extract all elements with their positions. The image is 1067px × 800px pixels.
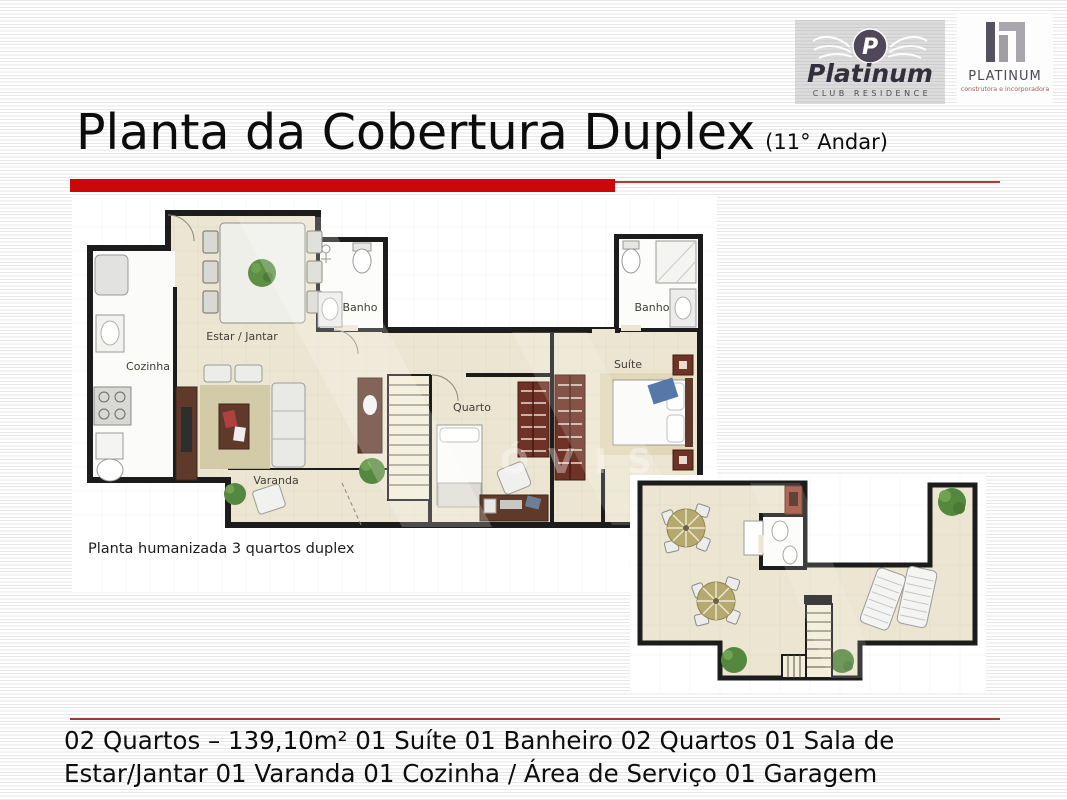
logo-platinum-construtora: PLATINUM construtora e incorporadora: [957, 14, 1053, 104]
label-quarto: Quarto: [453, 401, 491, 414]
page-title: Planta da Cobertura Duplex: [76, 104, 755, 161]
parasol-table-2: [691, 576, 741, 626]
logo-club-tagline: CLUB RESIDENCE: [813, 89, 931, 98]
spec-text: 02 Quartos – 139,10m² 01 Suíte 01 Banhei…: [64, 724, 1024, 790]
label-suite: Suíte: [614, 358, 642, 371]
monogram-letter: P: [862, 35, 878, 60]
footer-divider: [70, 718, 1000, 720]
logo-club-brand: Platinum: [807, 59, 933, 88]
plan-caption: Planta humanizada 3 quartos duplex: [88, 541, 355, 557]
label-banho-suite: Banho: [635, 301, 670, 314]
parasol-table-1: [661, 503, 711, 553]
logo-builder-tagline: construtora e incorporadora: [961, 86, 1050, 93]
label-varanda: Varanda: [253, 474, 298, 487]
slide-title-row: Planta da Cobertura Duplex (11° Andar): [76, 104, 888, 161]
terrace-floorplan: [630, 475, 986, 693]
logo-platinum-club-residence: P Platinum CLUB RESIDENCE: [795, 20, 945, 104]
spec-line-2: Estar/Jantar 01 Varanda 01 Cozinha / Áre…: [64, 757, 1024, 790]
title-underline-thick: [70, 179, 615, 192]
main-floorplan: ÓVIS Cozinha Estar / Jantar Banho Banho …: [72, 197, 717, 592]
label-estar-jantar: Estar / Jantar: [206, 330, 278, 343]
label-banho-social: Banho: [343, 301, 378, 314]
builder-mark-icon: [986, 22, 1025, 62]
page-title-suffix: (11° Andar): [765, 130, 888, 154]
label-cozinha: Cozinha: [126, 360, 170, 373]
logo-builder-brand: PLATINUM: [968, 69, 1042, 84]
spec-line-1: 02 Quartos – 139,10m² 01 Suíte 01 Banhei…: [64, 724, 1024, 757]
